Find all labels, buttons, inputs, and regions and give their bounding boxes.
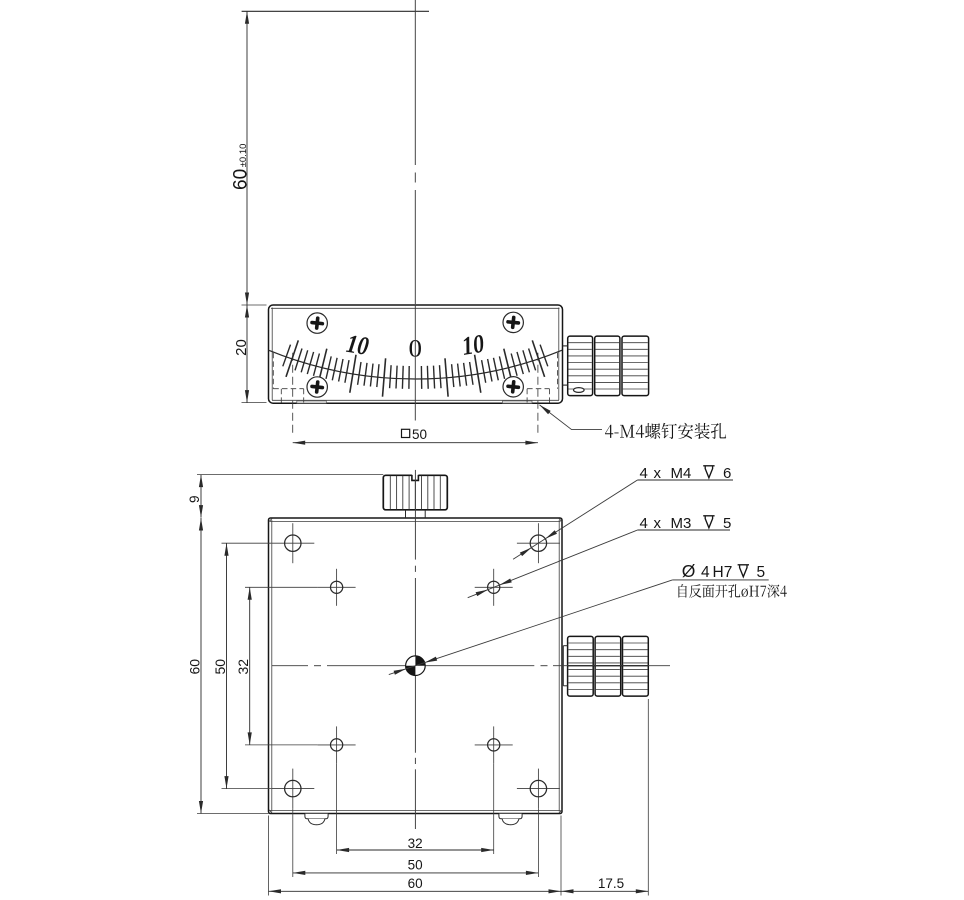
svg-text:32: 32 [235, 659, 251, 675]
svg-text:50: 50 [212, 659, 228, 675]
svg-text:50: 50 [412, 427, 427, 442]
svg-text:4: 4 [701, 564, 710, 581]
svg-text:M3: M3 [671, 515, 692, 532]
svg-text:9: 9 [187, 495, 202, 503]
svg-text:20: 20 [233, 339, 250, 356]
svg-text:5: 5 [723, 515, 731, 532]
svg-text:60: 60 [408, 876, 423, 891]
svg-text:50: 50 [408, 858, 423, 873]
svg-text:60: 60 [186, 659, 202, 675]
svg-text:5: 5 [757, 564, 766, 581]
svg-text:60: 60 [230, 169, 251, 190]
svg-text:4: 4 [640, 515, 648, 532]
svg-text:±0.10: ±0.10 [238, 144, 249, 168]
svg-text:10: 10 [460, 329, 486, 361]
svg-text:32: 32 [408, 836, 423, 851]
svg-text:10: 10 [344, 329, 370, 361]
svg-text:x: x [654, 465, 662, 482]
svg-text:6: 6 [723, 465, 731, 482]
svg-text:H7: H7 [713, 564, 733, 581]
svg-text:17.5: 17.5 [598, 876, 624, 891]
svg-text:Ø: Ø [682, 561, 696, 581]
svg-text:4: 4 [640, 465, 648, 482]
svg-text:M4: M4 [671, 465, 692, 482]
svg-text:x: x [654, 515, 662, 532]
